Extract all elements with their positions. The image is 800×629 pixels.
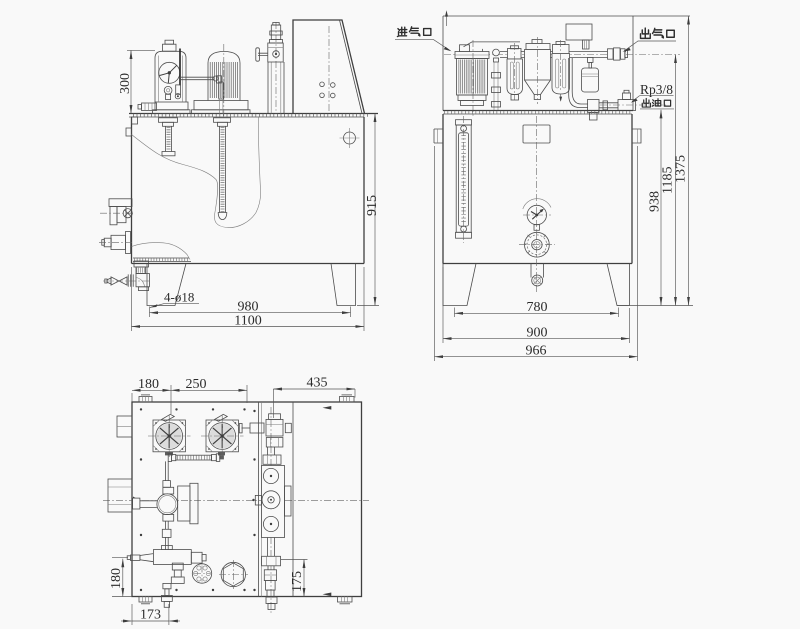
- svg-text:300: 300: [118, 73, 133, 94]
- svg-text:900: 900: [527, 325, 548, 340]
- svg-text:180: 180: [138, 377, 159, 392]
- svg-text:966: 966: [526, 343, 547, 358]
- svg-text:180: 180: [109, 568, 124, 589]
- svg-text:175: 175: [290, 571, 305, 592]
- svg-text:4-ø18: 4-ø18: [164, 290, 194, 305]
- svg-text:915: 915: [365, 195, 380, 216]
- svg-text:435: 435: [307, 376, 328, 391]
- svg-text:1100: 1100: [234, 314, 261, 329]
- svg-text:Rp3/8: Rp3/8: [640, 82, 673, 97]
- svg-text:173: 173: [140, 608, 161, 623]
- svg-text:250: 250: [186, 377, 207, 392]
- svg-text:980: 980: [238, 300, 259, 315]
- svg-text:1375: 1375: [674, 155, 689, 183]
- svg-text:780: 780: [527, 300, 548, 315]
